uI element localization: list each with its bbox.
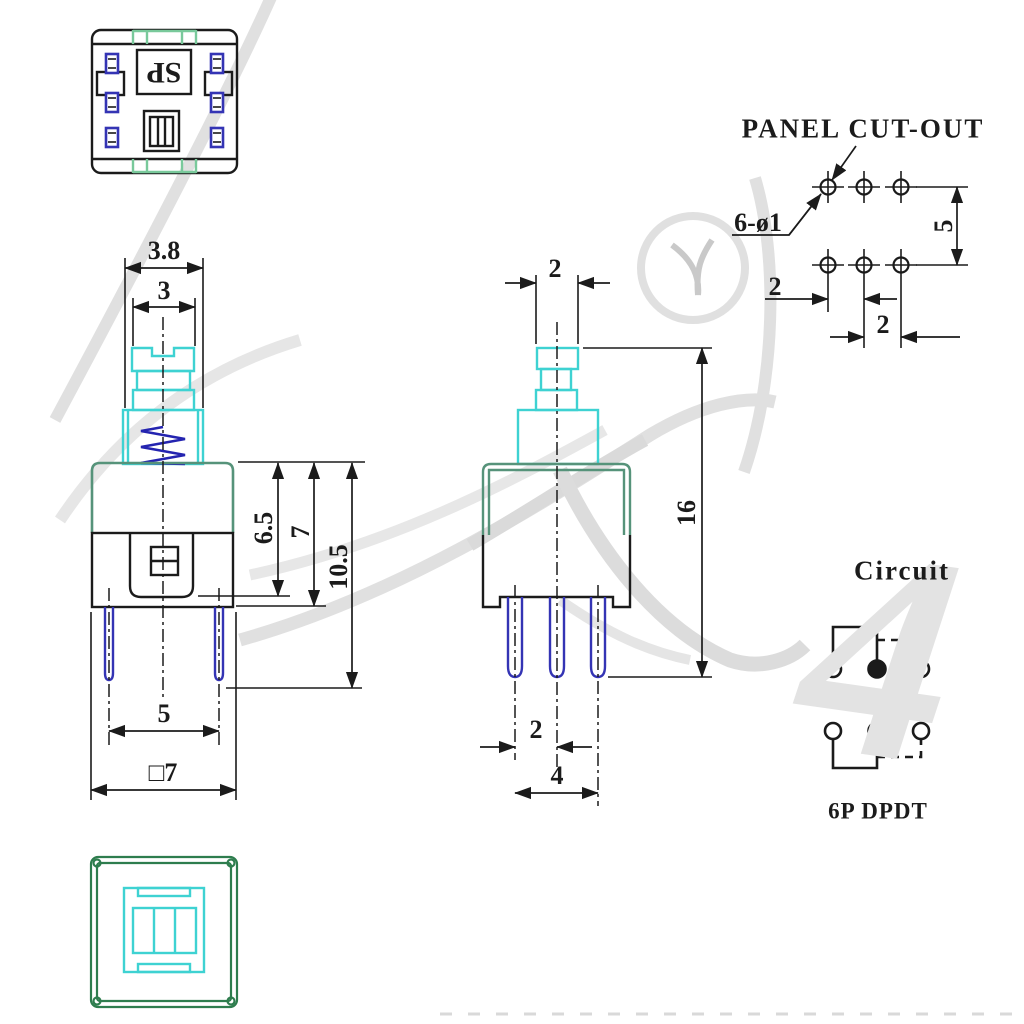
bottom-view-actuator bbox=[124, 888, 204, 972]
circuit-bottom-dashed-link bbox=[877, 739, 921, 757]
dim-front-body-height-label: 7 bbox=[288, 526, 314, 539]
circuit-common-bottom bbox=[869, 723, 886, 740]
dim-panel-col-pitch-a-label: 2 bbox=[769, 274, 782, 300]
dim-front-pin-spacing-label: 5 bbox=[158, 701, 171, 727]
panel-hole-spec-label: 6-ø1 bbox=[734, 210, 782, 236]
switch-technical-drawing bbox=[0, 0, 1024, 1024]
drawing-canvas: 4 3.8 3 6.5 7 10.5 5 □7 2 16 2 4 PANEL C… bbox=[0, 0, 1024, 1024]
sp-marking-label: SP bbox=[146, 57, 181, 87]
dim-front-to-pin-end-label: 10.5 bbox=[326, 544, 352, 590]
panel-hole-crosshairs bbox=[812, 171, 917, 281]
circuit-type-label: 6P DPDT bbox=[828, 800, 928, 823]
circuit-bottom-solid-link bbox=[833, 739, 877, 768]
dim-side-pin-pitch-label: 2 bbox=[530, 717, 543, 743]
circuit-top-solid-link bbox=[833, 627, 877, 661]
dim-panel-col-pitch-b-label: 2 bbox=[877, 312, 890, 338]
circuit-diagram bbox=[825, 627, 929, 768]
left-boss bbox=[97, 72, 124, 95]
bottom-view bbox=[91, 857, 237, 1007]
title-leader-arrow bbox=[832, 146, 856, 180]
dim-front-body-width-label: □7 bbox=[149, 760, 178, 786]
dim-side-pin-span-label: 4 bbox=[551, 763, 564, 789]
dim-front-knob-inner-label: 3 bbox=[158, 278, 171, 304]
top-view bbox=[92, 30, 237, 173]
circuit-title: Circuit bbox=[854, 558, 950, 585]
dim-side-total-height-label: 16 bbox=[674, 500, 700, 526]
circuit-top-dashed-link bbox=[877, 640, 921, 660]
front-pins bbox=[105, 607, 223, 680]
dim-panel-row-spacing-label: 5 bbox=[931, 220, 957, 233]
dim-front-body-upper-label: 6.5 bbox=[251, 512, 277, 545]
bottom-view-housing bbox=[91, 857, 237, 1007]
panel-cutout-title: PANEL CUT-OUT bbox=[742, 116, 985, 143]
dim-front-knob-outer-label: 3.8 bbox=[148, 238, 181, 264]
front-view bbox=[91, 258, 365, 800]
circuit-common-top bbox=[869, 661, 886, 678]
dim-side-tip-width-label: 2 bbox=[549, 256, 562, 282]
